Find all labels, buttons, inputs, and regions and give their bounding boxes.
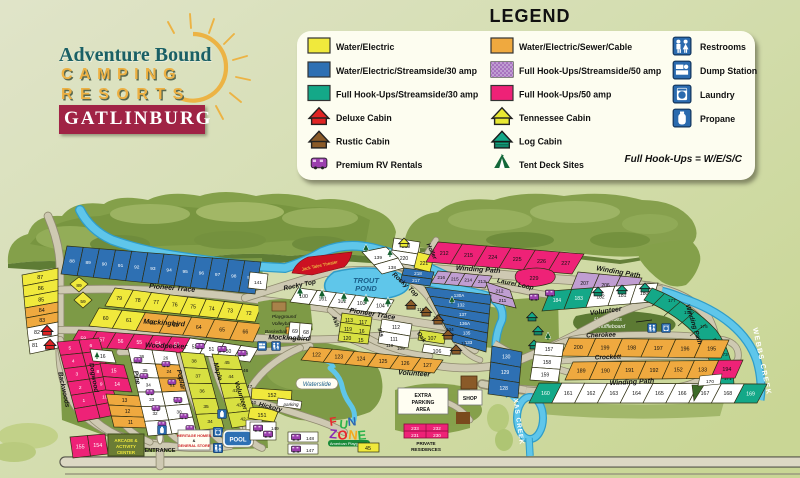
svg-text:16: 16 bbox=[359, 329, 365, 335]
svg-text:44: 44 bbox=[228, 374, 234, 380]
svg-text:200: 200 bbox=[574, 345, 583, 351]
svg-text:160: 160 bbox=[541, 391, 550, 397]
svg-text:4: 4 bbox=[72, 358, 75, 364]
svg-text:106: 106 bbox=[433, 349, 442, 355]
svg-text:92: 92 bbox=[134, 264, 140, 270]
svg-text:66: 66 bbox=[243, 330, 249, 336]
svg-text:Cherokee: Cherokee bbox=[586, 331, 616, 339]
svg-text:195: 195 bbox=[707, 347, 716, 353]
svg-text:46: 46 bbox=[243, 368, 249, 374]
svg-text:217: 217 bbox=[412, 278, 420, 283]
svg-text:132: 132 bbox=[457, 303, 465, 308]
svg-text:RESIDENCES: RESIDENCES bbox=[411, 447, 441, 452]
svg-text:Premium RV Rentals: Premium RV Rentals bbox=[336, 160, 422, 170]
svg-text:Restrooms: Restrooms bbox=[700, 42, 746, 52]
svg-text:69: 69 bbox=[292, 329, 298, 335]
svg-text:15: 15 bbox=[111, 369, 117, 375]
svg-text:72: 72 bbox=[246, 311, 252, 317]
svg-text:91: 91 bbox=[118, 263, 124, 269]
svg-text:159: 159 bbox=[541, 372, 550, 378]
svg-text:76: 76 bbox=[172, 302, 178, 308]
svg-text:149: 149 bbox=[271, 426, 279, 431]
svg-text:191: 191 bbox=[625, 368, 634, 374]
svg-text:122: 122 bbox=[312, 352, 321, 358]
svg-text:124: 124 bbox=[357, 357, 366, 363]
svg-text:152: 152 bbox=[268, 393, 277, 399]
svg-text:POND: POND bbox=[355, 284, 377, 293]
svg-text:HERITAGE HOMES: HERITAGE HOMES bbox=[177, 434, 212, 438]
svg-text:164: 164 bbox=[632, 391, 641, 397]
svg-text:215: 215 bbox=[464, 253, 473, 259]
svg-text:60: 60 bbox=[103, 316, 109, 322]
svg-text:98: 98 bbox=[231, 273, 237, 279]
svg-text:6: 6 bbox=[89, 343, 92, 349]
svg-text:225: 225 bbox=[513, 257, 522, 263]
svg-text:89: 89 bbox=[86, 260, 92, 266]
svg-text:84: 84 bbox=[39, 308, 45, 314]
svg-text:155: 155 bbox=[76, 445, 85, 451]
svg-text:212: 212 bbox=[440, 251, 449, 257]
svg-text:Tennessee Cabin: Tennessee Cabin bbox=[519, 113, 591, 123]
svg-text:211: 211 bbox=[499, 298, 507, 304]
svg-text:Rustic Cabin: Rustic Cabin bbox=[336, 137, 390, 147]
svg-text:77: 77 bbox=[153, 300, 159, 306]
svg-text:170: 170 bbox=[706, 379, 714, 385]
svg-text:86: 86 bbox=[38, 286, 44, 292]
svg-text:163: 163 bbox=[609, 391, 618, 397]
svg-text:74: 74 bbox=[209, 307, 215, 313]
svg-text:82: 82 bbox=[34, 330, 40, 336]
svg-text:139: 139 bbox=[374, 255, 382, 261]
svg-text:32: 32 bbox=[152, 411, 158, 416]
svg-text:Mockingbird: Mockingbird bbox=[268, 334, 311, 342]
svg-text:96: 96 bbox=[199, 270, 205, 276]
svg-text:109: 109 bbox=[397, 346, 405, 351]
svg-text:34: 34 bbox=[207, 419, 213, 425]
svg-text:97: 97 bbox=[215, 272, 221, 278]
svg-text:40: 40 bbox=[251, 400, 257, 406]
svg-text:194: 194 bbox=[722, 367, 731, 373]
svg-text:93: 93 bbox=[150, 266, 156, 272]
svg-text:113: 113 bbox=[345, 318, 353, 324]
svg-text:169: 169 bbox=[746, 391, 755, 397]
svg-text:24: 24 bbox=[166, 369, 172, 374]
svg-text:Full Hook-Ups/Streamside/50 am: Full Hook-Ups/Streamside/50 amp bbox=[519, 66, 662, 76]
svg-text:Playground: Playground bbox=[272, 314, 297, 320]
svg-text:104: 104 bbox=[376, 304, 385, 310]
svg-text:128: 128 bbox=[500, 386, 509, 392]
svg-text:13: 13 bbox=[461, 341, 467, 346]
svg-text:16: 16 bbox=[100, 354, 106, 360]
svg-text:226: 226 bbox=[537, 259, 546, 265]
svg-text:216: 216 bbox=[437, 275, 445, 280]
svg-text:218: 218 bbox=[414, 271, 422, 276]
svg-text:parking: parking bbox=[282, 402, 299, 407]
svg-text:45: 45 bbox=[224, 360, 230, 366]
svg-text:Water/Electric: Water/Electric bbox=[336, 42, 394, 52]
svg-text:42: 42 bbox=[240, 417, 246, 423]
svg-text:162: 162 bbox=[587, 391, 596, 397]
svg-text:95: 95 bbox=[183, 269, 189, 275]
svg-text:36: 36 bbox=[199, 389, 205, 395]
svg-text:SHOP: SHOP bbox=[463, 396, 478, 402]
svg-text:148: 148 bbox=[306, 436, 314, 442]
svg-text:73: 73 bbox=[227, 309, 233, 315]
svg-text:199: 199 bbox=[601, 345, 610, 351]
svg-text:229: 229 bbox=[530, 276, 539, 282]
svg-text:POOL: POOL bbox=[229, 438, 246, 444]
svg-text:135: 135 bbox=[463, 331, 471, 336]
svg-text:161: 161 bbox=[564, 391, 573, 397]
svg-text:3: 3 bbox=[75, 372, 78, 378]
svg-text:152: 152 bbox=[674, 368, 683, 374]
svg-text:126: 126 bbox=[401, 361, 410, 367]
svg-text:ARCADE &: ARCADE & bbox=[114, 438, 138, 443]
svg-text:115: 115 bbox=[417, 307, 425, 312]
svg-text:PARKING: PARKING bbox=[412, 400, 435, 406]
svg-text:157: 157 bbox=[545, 347, 554, 353]
svg-text:ENTRANCE: ENTRANCE bbox=[144, 448, 175, 454]
svg-text:227: 227 bbox=[561, 261, 570, 267]
svg-text:184: 184 bbox=[553, 298, 562, 304]
svg-text:78: 78 bbox=[135, 298, 141, 304]
svg-text:2: 2 bbox=[79, 385, 82, 391]
svg-text:CENTER: CENTER bbox=[117, 450, 136, 455]
svg-text:151: 151 bbox=[258, 413, 267, 419]
svg-text:134: 134 bbox=[446, 327, 454, 332]
svg-text:120: 120 bbox=[343, 336, 352, 342]
svg-text:15: 15 bbox=[358, 338, 364, 344]
svg-text:56: 56 bbox=[118, 339, 124, 345]
svg-text:130: 130 bbox=[502, 355, 511, 361]
svg-text:112: 112 bbox=[392, 325, 400, 331]
svg-text:207: 207 bbox=[580, 281, 589, 287]
svg-text:110: 110 bbox=[386, 343, 394, 348]
svg-text:79: 79 bbox=[116, 296, 122, 302]
svg-text:35: 35 bbox=[203, 404, 209, 410]
svg-text:87: 87 bbox=[37, 275, 43, 281]
svg-text:34: 34 bbox=[146, 382, 152, 387]
svg-text:189: 189 bbox=[577, 369, 586, 375]
svg-text:15: 15 bbox=[433, 315, 439, 320]
svg-text:233: 233 bbox=[411, 426, 419, 431]
svg-text:101: 101 bbox=[318, 296, 327, 302]
svg-text:136A: 136A bbox=[459, 321, 470, 326]
svg-text:125: 125 bbox=[379, 359, 388, 365]
svg-text:175: 175 bbox=[700, 324, 708, 329]
svg-text:81: 81 bbox=[32, 343, 38, 349]
svg-text:Waterslide: Waterslide bbox=[303, 382, 332, 388]
svg-text:192: 192 bbox=[650, 368, 659, 374]
svg-text:Full Hook-Ups/Streamside/30 am: Full Hook-Ups/Streamside/30 amp bbox=[336, 90, 479, 100]
svg-text:5: 5 bbox=[68, 345, 71, 351]
svg-text:166: 166 bbox=[678, 391, 687, 397]
svg-text:117: 117 bbox=[359, 320, 367, 326]
svg-text:196: 196 bbox=[681, 346, 690, 352]
svg-text:88: 88 bbox=[69, 258, 75, 264]
svg-text:33: 33 bbox=[149, 397, 155, 402]
svg-text:26: 26 bbox=[163, 355, 169, 360]
svg-text:213: 213 bbox=[478, 279, 486, 284]
svg-text:38: 38 bbox=[191, 358, 197, 364]
svg-text:65: 65 bbox=[219, 327, 225, 333]
svg-text:75: 75 bbox=[190, 304, 196, 310]
svg-text:183: 183 bbox=[575, 296, 584, 302]
svg-text:165: 165 bbox=[655, 391, 664, 397]
svg-text:Tent Deck Sites: Tent Deck Sites bbox=[519, 160, 584, 170]
svg-text:130A: 130A bbox=[454, 293, 465, 298]
svg-text:14: 14 bbox=[114, 382, 120, 388]
svg-text:90: 90 bbox=[102, 261, 108, 267]
svg-text:PRIVATE: PRIVATE bbox=[416, 441, 435, 446]
svg-text:198: 198 bbox=[627, 346, 636, 352]
svg-text:61: 61 bbox=[126, 318, 132, 324]
svg-text:215: 215 bbox=[451, 277, 459, 282]
svg-text:Dump Station: Dump Station bbox=[700, 66, 757, 76]
svg-text:214: 214 bbox=[464, 278, 472, 283]
svg-text:Propane: Propane bbox=[700, 114, 735, 124]
svg-text:83: 83 bbox=[39, 318, 45, 324]
svg-text:127: 127 bbox=[423, 363, 432, 369]
svg-text:13: 13 bbox=[122, 398, 128, 404]
svg-text:137: 137 bbox=[459, 312, 467, 317]
svg-text:231: 231 bbox=[411, 433, 419, 438]
svg-text:Crockett: Crockett bbox=[595, 354, 622, 362]
svg-text:Full Hook-Ups = W/E/S/C: Full Hook-Ups = W/E/S/C bbox=[624, 154, 742, 165]
svg-text:129: 129 bbox=[501, 370, 510, 376]
svg-text:Laundry: Laundry bbox=[700, 90, 735, 100]
svg-text:123: 123 bbox=[334, 355, 343, 361]
svg-text:9: 9 bbox=[100, 382, 103, 388]
svg-text:212: 212 bbox=[495, 288, 503, 294]
svg-text:103: 103 bbox=[357, 301, 366, 307]
svg-text:AREA: AREA bbox=[416, 407, 431, 413]
svg-text:Full Hook-Ups/50 amp: Full Hook-Ups/50 amp bbox=[519, 90, 612, 100]
svg-text:12: 12 bbox=[125, 409, 131, 415]
svg-text:147: 147 bbox=[306, 448, 314, 454]
svg-text:1: 1 bbox=[82, 398, 85, 404]
svg-text:59: 59 bbox=[80, 299, 86, 305]
svg-text:230: 230 bbox=[433, 433, 441, 438]
svg-text:94: 94 bbox=[166, 267, 172, 273]
svg-text:158: 158 bbox=[543, 360, 552, 366]
svg-text:102: 102 bbox=[338, 299, 347, 305]
svg-text:168: 168 bbox=[723, 391, 732, 397]
svg-text:Water/Electric/Sewer/Cable: Water/Electric/Sewer/Cable bbox=[519, 42, 632, 52]
svg-text:11: 11 bbox=[128, 420, 133, 426]
svg-text:154: 154 bbox=[93, 443, 102, 449]
svg-text:141: 141 bbox=[254, 280, 262, 286]
svg-text:37: 37 bbox=[195, 374, 201, 380]
svg-text:167: 167 bbox=[701, 391, 710, 397]
svg-text:ACTIVITY: ACTIVITY bbox=[116, 444, 136, 449]
svg-text:197: 197 bbox=[654, 346, 663, 352]
svg-text:35: 35 bbox=[142, 368, 148, 373]
svg-text:45: 45 bbox=[365, 446, 371, 452]
svg-text:EXTRA: EXTRA bbox=[415, 393, 432, 399]
svg-text:232: 232 bbox=[433, 426, 441, 431]
svg-text:220: 220 bbox=[400, 256, 409, 262]
svg-text:GENERAL STORE: GENERAL STORE bbox=[178, 444, 211, 448]
svg-text:64: 64 bbox=[196, 325, 202, 331]
svg-text:&: & bbox=[193, 439, 196, 443]
svg-text:Water/Electric/Streamside/30 a: Water/Electric/Streamside/30 amp bbox=[336, 66, 478, 76]
svg-text:224: 224 bbox=[488, 255, 497, 261]
svg-text:89: 89 bbox=[76, 283, 82, 289]
svg-text:190: 190 bbox=[601, 369, 610, 375]
svg-text:177: 177 bbox=[668, 298, 676, 303]
svg-text:Deluxe Cabin: Deluxe Cabin bbox=[336, 113, 392, 123]
svg-text:133: 133 bbox=[698, 367, 707, 373]
svg-text:55: 55 bbox=[137, 340, 143, 346]
svg-text:85: 85 bbox=[38, 297, 44, 303]
svg-text:Log Cabin: Log Cabin bbox=[519, 137, 562, 147]
svg-text:107: 107 bbox=[428, 336, 437, 342]
svg-text:51: 51 bbox=[209, 347, 215, 353]
svg-text:119: 119 bbox=[344, 327, 352, 333]
